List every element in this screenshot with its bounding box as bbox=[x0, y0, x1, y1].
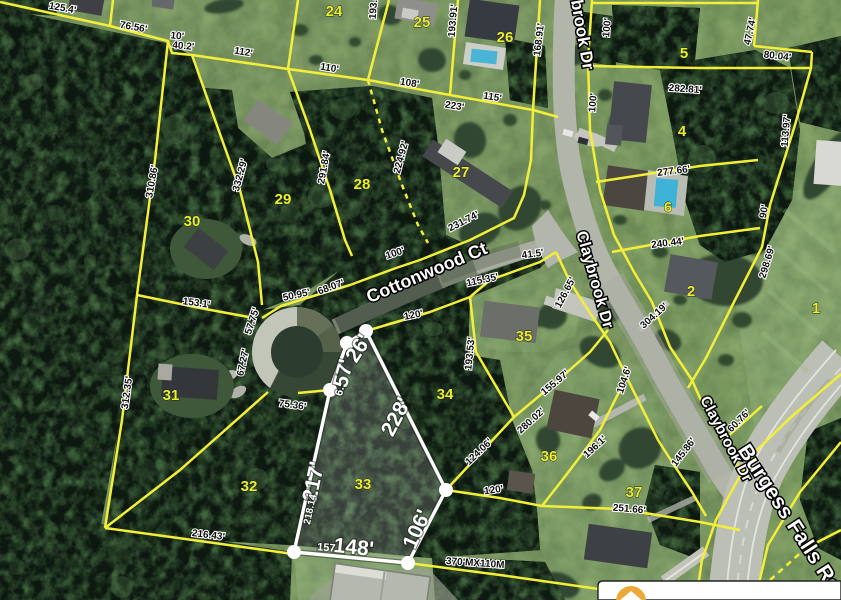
svg-text:157: 157 bbox=[317, 541, 336, 555]
svg-text:30: 30 bbox=[184, 213, 201, 230]
svg-text:282.81': 282.81' bbox=[668, 83, 702, 96]
svg-text:27: 27 bbox=[453, 164, 470, 181]
svg-text:37: 37 bbox=[626, 484, 643, 501]
svg-text:33: 33 bbox=[355, 476, 372, 493]
svg-text:100': 100' bbox=[601, 18, 614, 38]
svg-text:40.2': 40.2' bbox=[172, 40, 195, 53]
svg-text:5: 5 bbox=[680, 45, 688, 62]
svg-text:100': 100' bbox=[587, 93, 600, 113]
svg-text:34: 34 bbox=[437, 386, 454, 403]
svg-text:35: 35 bbox=[516, 328, 533, 345]
svg-text:29: 29 bbox=[275, 191, 292, 208]
svg-text:4: 4 bbox=[678, 123, 687, 140]
svg-text:32: 32 bbox=[241, 478, 258, 495]
svg-text:6: 6 bbox=[664, 199, 672, 216]
svg-text:24: 24 bbox=[326, 3, 343, 20]
svg-text:28: 28 bbox=[354, 176, 371, 193]
svg-text:31: 31 bbox=[163, 387, 180, 404]
svg-text:25: 25 bbox=[414, 14, 431, 31]
svg-text:2: 2 bbox=[687, 283, 695, 300]
svg-text:26: 26 bbox=[497, 29, 514, 46]
svg-text:36: 36 bbox=[541, 448, 558, 465]
svg-text:148': 148' bbox=[333, 534, 375, 561]
svg-text:1: 1 bbox=[812, 300, 820, 317]
svg-text:90': 90' bbox=[758, 204, 771, 219]
